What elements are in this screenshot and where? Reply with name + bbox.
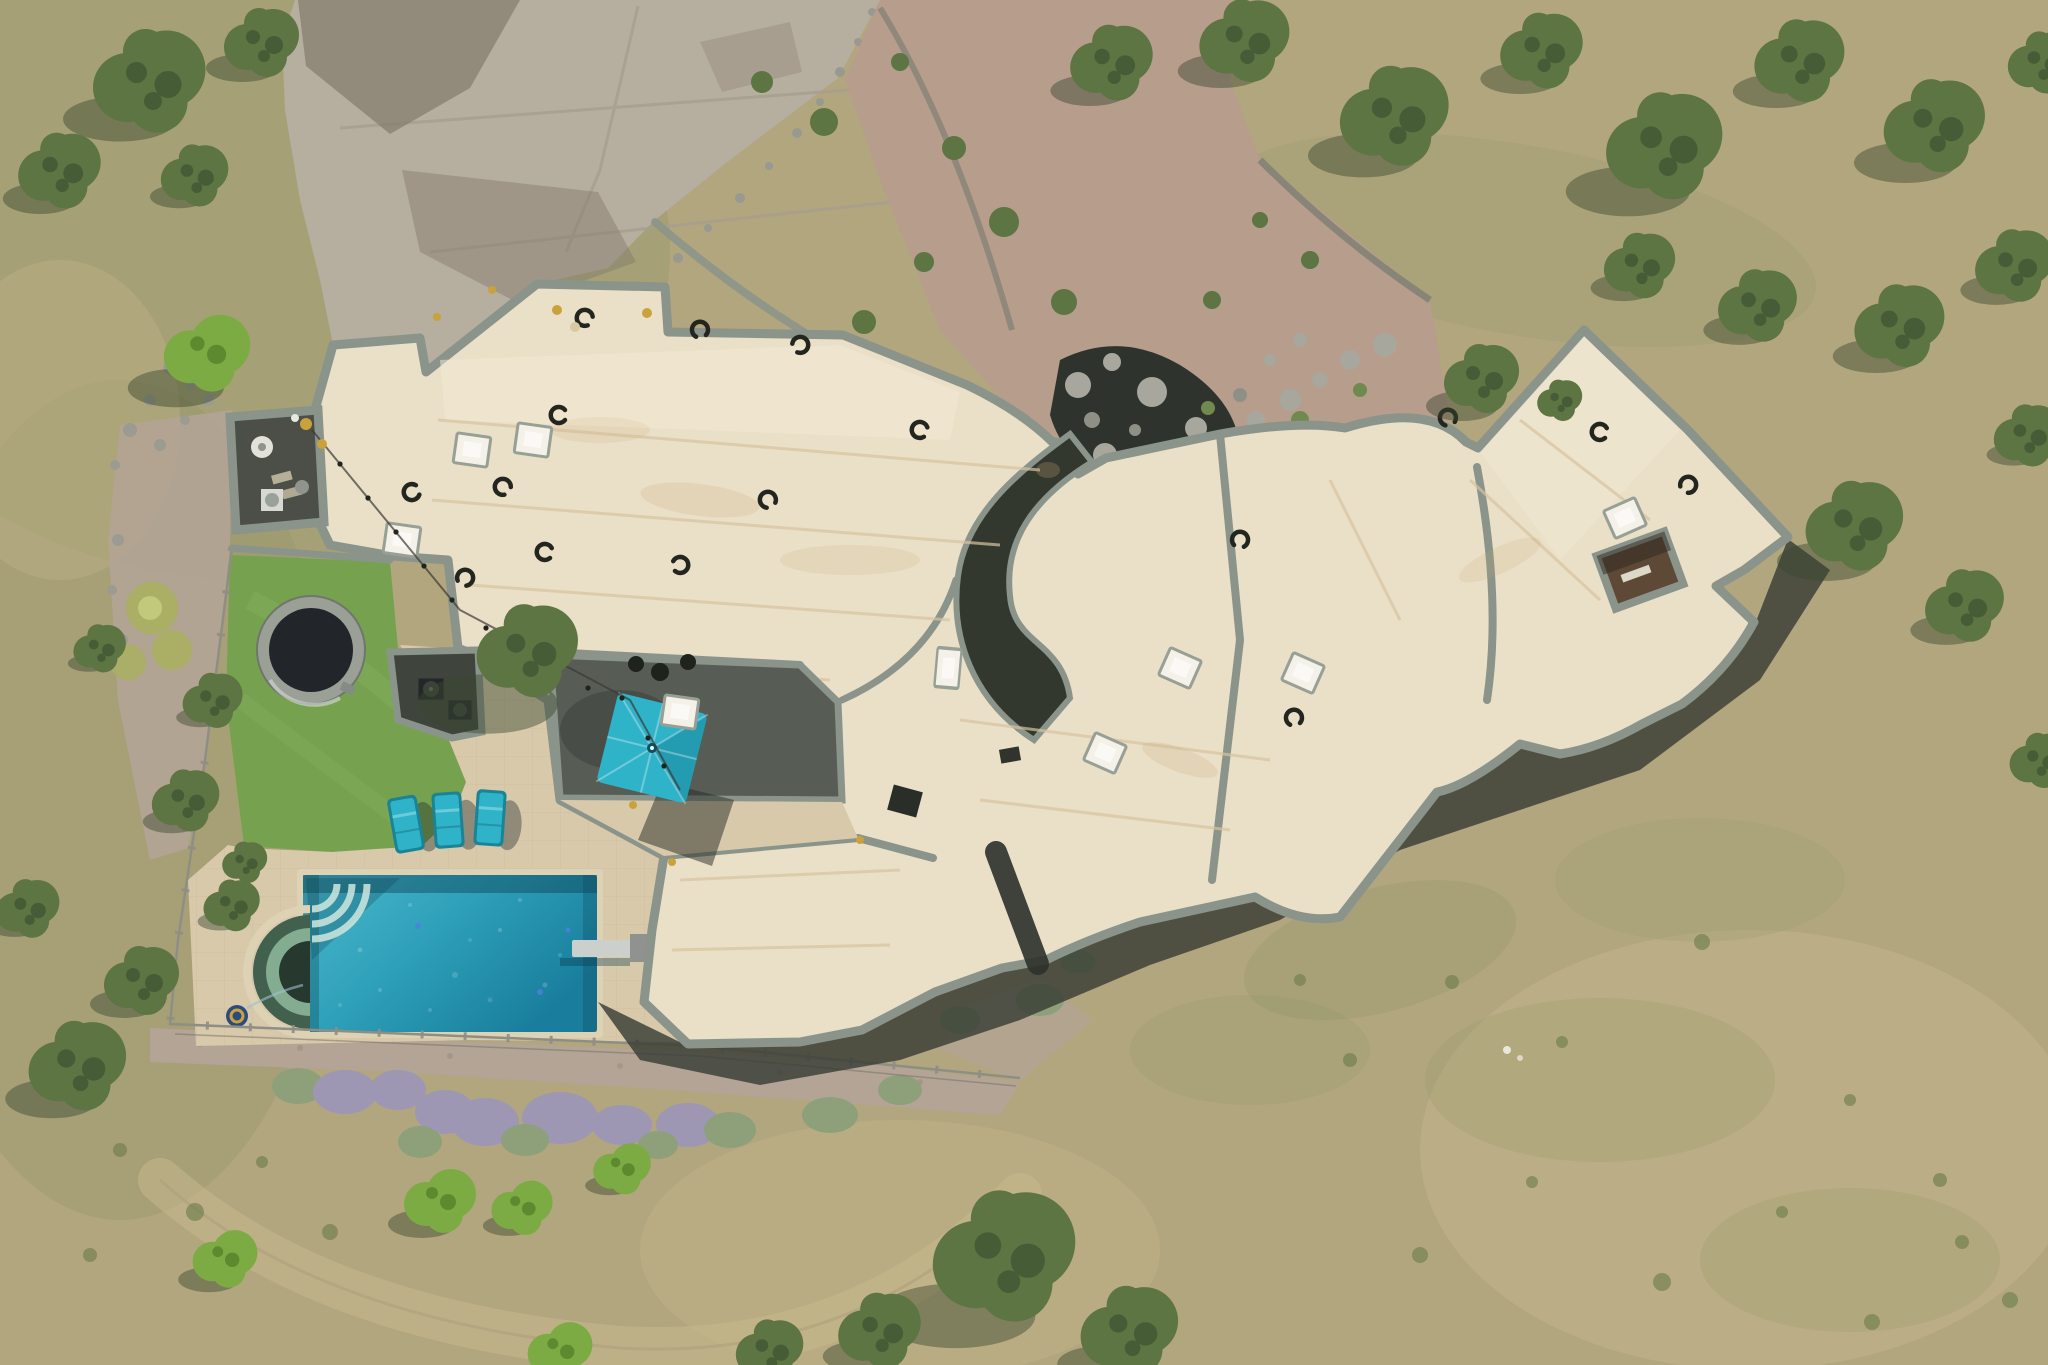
- white-rock: [1503, 1046, 1511, 1054]
- planter: [680, 654, 696, 670]
- planter: [628, 656, 644, 672]
- aerial-photo-canvas: [0, 0, 2048, 1365]
- swimming-pool: [297, 869, 603, 1038]
- white-rock: [1517, 1055, 1523, 1061]
- trampoline: [257, 596, 365, 705]
- aerial-photo: [0, 0, 2048, 1365]
- planter: [651, 663, 669, 681]
- equipment-cylinder: [295, 480, 309, 494]
